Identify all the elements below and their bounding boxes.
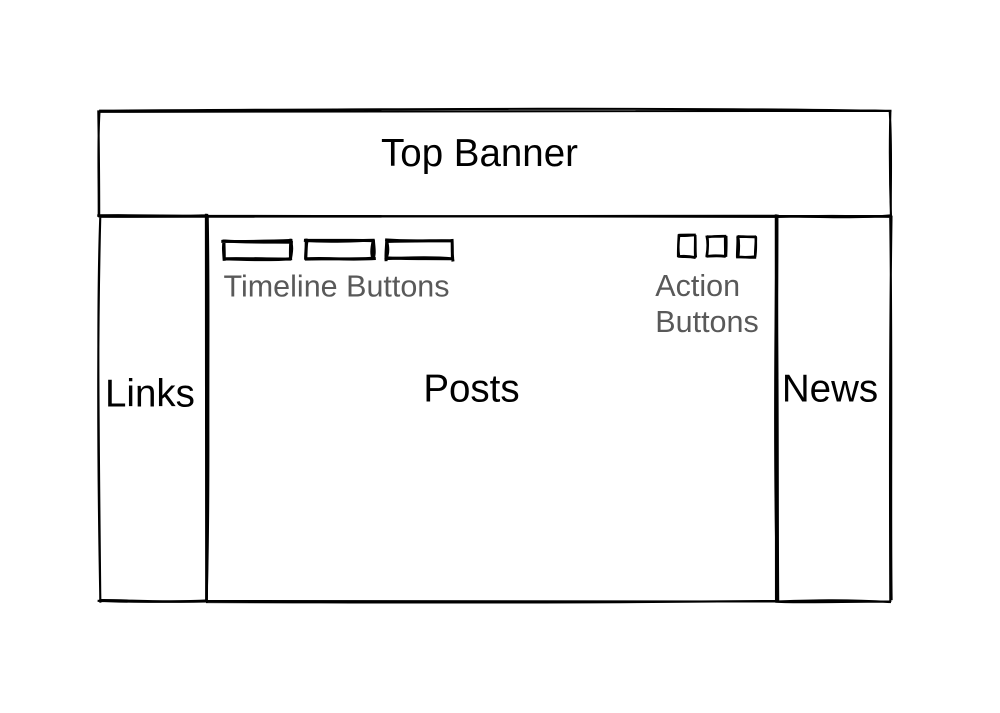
svg-text:Posts: Posts [423, 368, 519, 411]
svg-text:Timeline Buttons: Timeline Buttons [224, 270, 450, 304]
svg-text:Buttons: Buttons [655, 305, 758, 339]
svg-text:News: News [782, 368, 878, 411]
svg-text:Links: Links [105, 373, 195, 416]
svg-text:Action: Action [655, 269, 740, 303]
svg-text:Top Banner: Top Banner [381, 132, 578, 175]
